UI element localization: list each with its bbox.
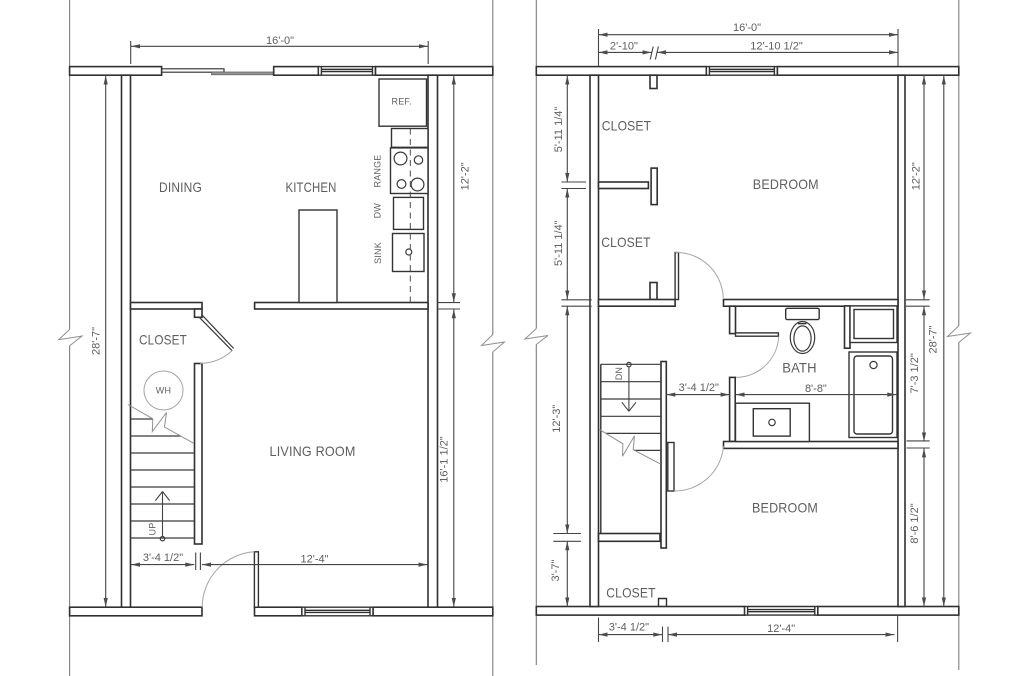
svg-text:BEDROOM: BEDROOM — [752, 501, 818, 516]
svg-text:LIVING ROOM: LIVING ROOM — [270, 444, 356, 459]
svg-text:2'-10": 2'-10" — [610, 41, 638, 53]
svg-text:CLOSET: CLOSET — [602, 119, 652, 134]
svg-text:KITCHEN: KITCHEN — [286, 180, 337, 195]
svg-text:CLOSET: CLOSET — [139, 333, 187, 348]
svg-text:5'-11 1/4": 5'-11 1/4" — [553, 220, 565, 266]
svg-text:7'-3 1/2": 7'-3 1/2" — [909, 353, 921, 393]
svg-text:WH: WH — [156, 386, 171, 396]
svg-text:12'-2": 12'-2" — [910, 162, 922, 190]
svg-text:28'-7": 28'-7" — [928, 325, 940, 353]
svg-text:28'-7": 28'-7" — [91, 327, 103, 355]
svg-text:DINING: DINING — [159, 180, 202, 195]
svg-text:CLOSET: CLOSET — [606, 586, 656, 601]
svg-text:16'-1 1/2": 16'-1 1/2" — [439, 436, 451, 482]
svg-text:RANGE: RANGE — [373, 154, 383, 187]
svg-text:SINK: SINK — [373, 242, 383, 264]
svg-text:5'-11 1/4": 5'-11 1/4" — [553, 107, 565, 153]
svg-text:CLOSET: CLOSET — [601, 235, 651, 250]
svg-text:REF.: REF. — [392, 97, 412, 107]
svg-text:DN: DN — [614, 367, 624, 380]
svg-text:12'-2": 12'-2" — [459, 162, 471, 190]
svg-text:12'-4": 12'-4" — [767, 623, 795, 635]
svg-text:3'-4 1/2": 3'-4 1/2" — [609, 622, 649, 634]
svg-text:16'-0": 16'-0" — [733, 22, 761, 34]
svg-text:16'-0": 16'-0" — [266, 35, 294, 47]
svg-text:BATH: BATH — [782, 361, 817, 376]
svg-text:8'-6 1/2": 8'-6 1/2" — [909, 503, 921, 543]
svg-text:UP: UP — [148, 523, 158, 536]
svg-text:12'-4": 12'-4" — [300, 554, 328, 566]
svg-text:3'-7": 3'-7" — [550, 559, 562, 581]
svg-text:3'-4 1/2": 3'-4 1/2" — [143, 552, 183, 564]
svg-text:3'-4 1/2": 3'-4 1/2" — [679, 382, 719, 394]
svg-text:12'-3": 12'-3" — [551, 405, 563, 433]
svg-text:BEDROOM: BEDROOM — [753, 177, 819, 192]
svg-text:12'-10 1/2": 12'-10 1/2" — [750, 41, 803, 53]
svg-text:8'-8": 8'-8" — [805, 383, 827, 395]
svg-text:DW: DW — [373, 203, 383, 219]
